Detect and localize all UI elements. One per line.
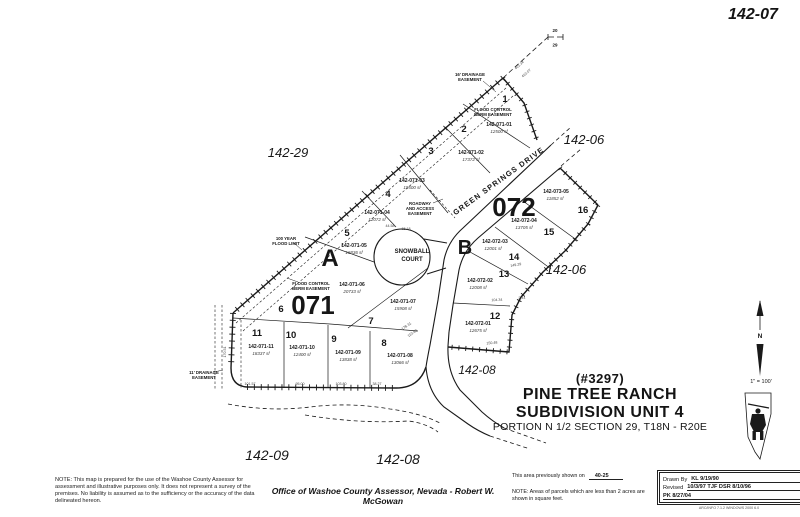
parcel-area-label: 17372 sf [462, 157, 480, 162]
parcel-area-label: 16836 sf [345, 250, 363, 255]
assessor-office-line: Office of Washoe County Assessor, Nevada… [255, 486, 511, 506]
dimension-label: 101.57 [245, 382, 256, 386]
parcel-apn-label: 142-071-04 [364, 210, 390, 216]
adjacent-sheet-label: 142-08 [376, 451, 420, 467]
revised-value: 10/3/97 TJF DSR 8/10/96 [687, 484, 800, 491]
block-number-label: 072 [492, 192, 535, 222]
parcel-area-label: 13066 sf [391, 360, 409, 365]
lot-number-label: 9 [331, 334, 336, 345]
dimension-label: 44.58 [386, 224, 395, 228]
parcel-apn-label: 142-071-11 [248, 344, 274, 350]
dimension-label: 401.34 [514, 60, 525, 70]
assessor-logo [745, 393, 771, 459]
parcel-area-label: 12008 sf [469, 285, 487, 290]
parcel-apn-label: 142-071-02 [458, 150, 484, 156]
assessor-map-page: { "sheet": { "number": "142-07" }, "titl… [0, 0, 800, 517]
block-letter-label: B [458, 237, 472, 259]
dimension-label: 178.31 [401, 321, 412, 331]
subdivision-unit: SUBDIVISION UNIT 4 [468, 404, 732, 422]
areas-note: NOTE: Areas of parcels which are less th… [512, 489, 650, 503]
subdivision-name: PINE TREE RANCH [468, 386, 732, 404]
revision-row: Revised 10/3/97 TJF DSR 8/10/96 [663, 484, 800, 491]
parcel-area-label: 12500 sf [490, 129, 508, 134]
dimension-label: 410.07 [521, 68, 532, 78]
drawn-by-label: Drawn By [663, 477, 687, 483]
block-number-label: 071 [291, 290, 334, 320]
lot-number-label: 5 [344, 228, 350, 239]
revised-label: Revised [663, 485, 683, 491]
parcel-apn-label: 142-072-01 [465, 321, 491, 327]
street-label-snowball: COURT [401, 257, 423, 263]
section-number-label: 29 [552, 43, 558, 48]
parcel-apn-label: 142-071-10 [289, 345, 315, 351]
dimension-label: 95.00 [296, 382, 305, 386]
dimension-label: 104.34 [491, 298, 502, 303]
revision-row: PK 8/27/04 [663, 493, 800, 500]
parcel-area-label: 12072 sf [368, 217, 386, 222]
parcel-apn-label: 142-071-01 [486, 122, 512, 128]
revision-row3-value: PK 8/27/04 [663, 493, 800, 500]
dimension-label: 170.51 [223, 347, 227, 358]
parcel-area-label: 12675 sf [469, 328, 487, 333]
legal-description: PORTION N 1/2 SECTION 29, T18N - R20E [468, 422, 732, 434]
easement-label: BERM EASEMENT [292, 286, 330, 291]
parcel-apn-label: 142-071-05 [341, 243, 367, 249]
map-id: (#3297) [468, 372, 732, 386]
lot-number-label: 10 [286, 330, 297, 341]
parcel-apn-label: 142-071-06 [339, 282, 365, 288]
dimension-label: 2.44 [518, 296, 525, 300]
dimension-label: 38.27 [373, 382, 382, 386]
drawn-by-value: KL 9/19/90 [691, 476, 800, 483]
lot-number-label: 11 [252, 328, 263, 339]
parcel-area-label: 20733 sf [342, 289, 361, 294]
title-block: (#3297) PINE TREE RANCH SUBDIVISION UNIT… [468, 372, 732, 434]
disclaimer-note: NOTE: This map is prepared for the use o… [55, 477, 263, 505]
dimension-label: 103.80 [336, 382, 347, 386]
scale-label: 1" = 100' [750, 379, 772, 385]
dimension-label: 149.29 [510, 262, 522, 268]
parcel-area-label: 15908 sf [394, 306, 412, 311]
parcel-apn-label: 142-071-03 [399, 178, 425, 184]
previously-shown-label: This area previously shown on [512, 473, 585, 479]
parcel-area-label: 18337 sf [252, 351, 270, 356]
easement-label: EASEMENT [408, 211, 432, 216]
lot-number-label: 12 [490, 311, 501, 322]
parcel-area-label: 13838 sf [339, 357, 357, 362]
lot-number-label: 16 [578, 205, 589, 216]
previously-shown-value: 40-25 [589, 473, 623, 480]
easement-label: BERM EASEMENT [474, 112, 512, 117]
section-number-label: 20 [552, 28, 558, 33]
lot-number-label: 8 [381, 338, 386, 349]
parcel-apn-label: 142-071-07 [390, 299, 416, 305]
easement-label: EASEMENT [192, 375, 216, 380]
lot-number-label: 2 [461, 124, 466, 135]
revision-box: Drawn By KL 9/19/90 Revised 10/3/97 TJF … [659, 472, 800, 503]
lot-number-label: 6 [278, 304, 283, 315]
plot-info: ARC/INFO 7.1.2 WINDOWS 2000 6.0 [664, 506, 794, 510]
adjacent-sheet-label: 142-29 [268, 145, 308, 160]
parcel-area-label: 12400 sf [293, 352, 311, 357]
parcel-area-label: 13705 sf [515, 225, 533, 230]
lot-number-label: 13 [499, 269, 510, 280]
lot-number-label: 1 [502, 94, 508, 105]
parcel-apn-label: 142-072-03 [482, 239, 508, 245]
easement-label: EASEMENT [458, 77, 482, 82]
parcel-apn-label: 142-071-08 [387, 353, 413, 359]
section-line [503, 34, 563, 78]
parcel-area-label: 19500 sf [403, 185, 421, 190]
parcel-apn-label: 142-071-09 [335, 350, 361, 356]
easement-label: FLOOD LIMIT [272, 241, 300, 246]
revision-row: Drawn By KL 9/19/90 [663, 476, 800, 483]
lot-number-label: 15 [544, 227, 555, 238]
parcel-apn-label: 142-073-05 [543, 189, 569, 195]
lot-number-label: 14 [509, 252, 520, 263]
street-label-snowball: SNOWBALL [395, 249, 430, 255]
lot-number-label: 3 [428, 146, 433, 157]
lot-number-label: 7 [368, 316, 373, 327]
parcel-area-label: 11852 sf [547, 196, 565, 201]
dimension-label: 110.80 [407, 328, 418, 337]
previously-shown: This area previously shown on40-25 [512, 473, 662, 479]
adjacent-sheet-label: 142-09 [245, 447, 289, 463]
parcel-map-canvas: 1142-071-0112500 sf2142-071-0217372 sf31… [0, 0, 800, 517]
adjacent-sheet-label: 142-06 [546, 262, 587, 277]
parcel-area-label: 12001 sf [484, 246, 502, 251]
north-label: N [758, 333, 763, 340]
block-letter-label: A [321, 245, 338, 272]
lot-number-label: 4 [385, 189, 391, 200]
dimension-label: 150.48 [486, 341, 497, 346]
dimension-label: 15.18 [402, 227, 411, 231]
adjacent-sheet-label: 142-06 [564, 132, 605, 147]
parcel-apn-label: 142-072-02 [467, 278, 493, 284]
